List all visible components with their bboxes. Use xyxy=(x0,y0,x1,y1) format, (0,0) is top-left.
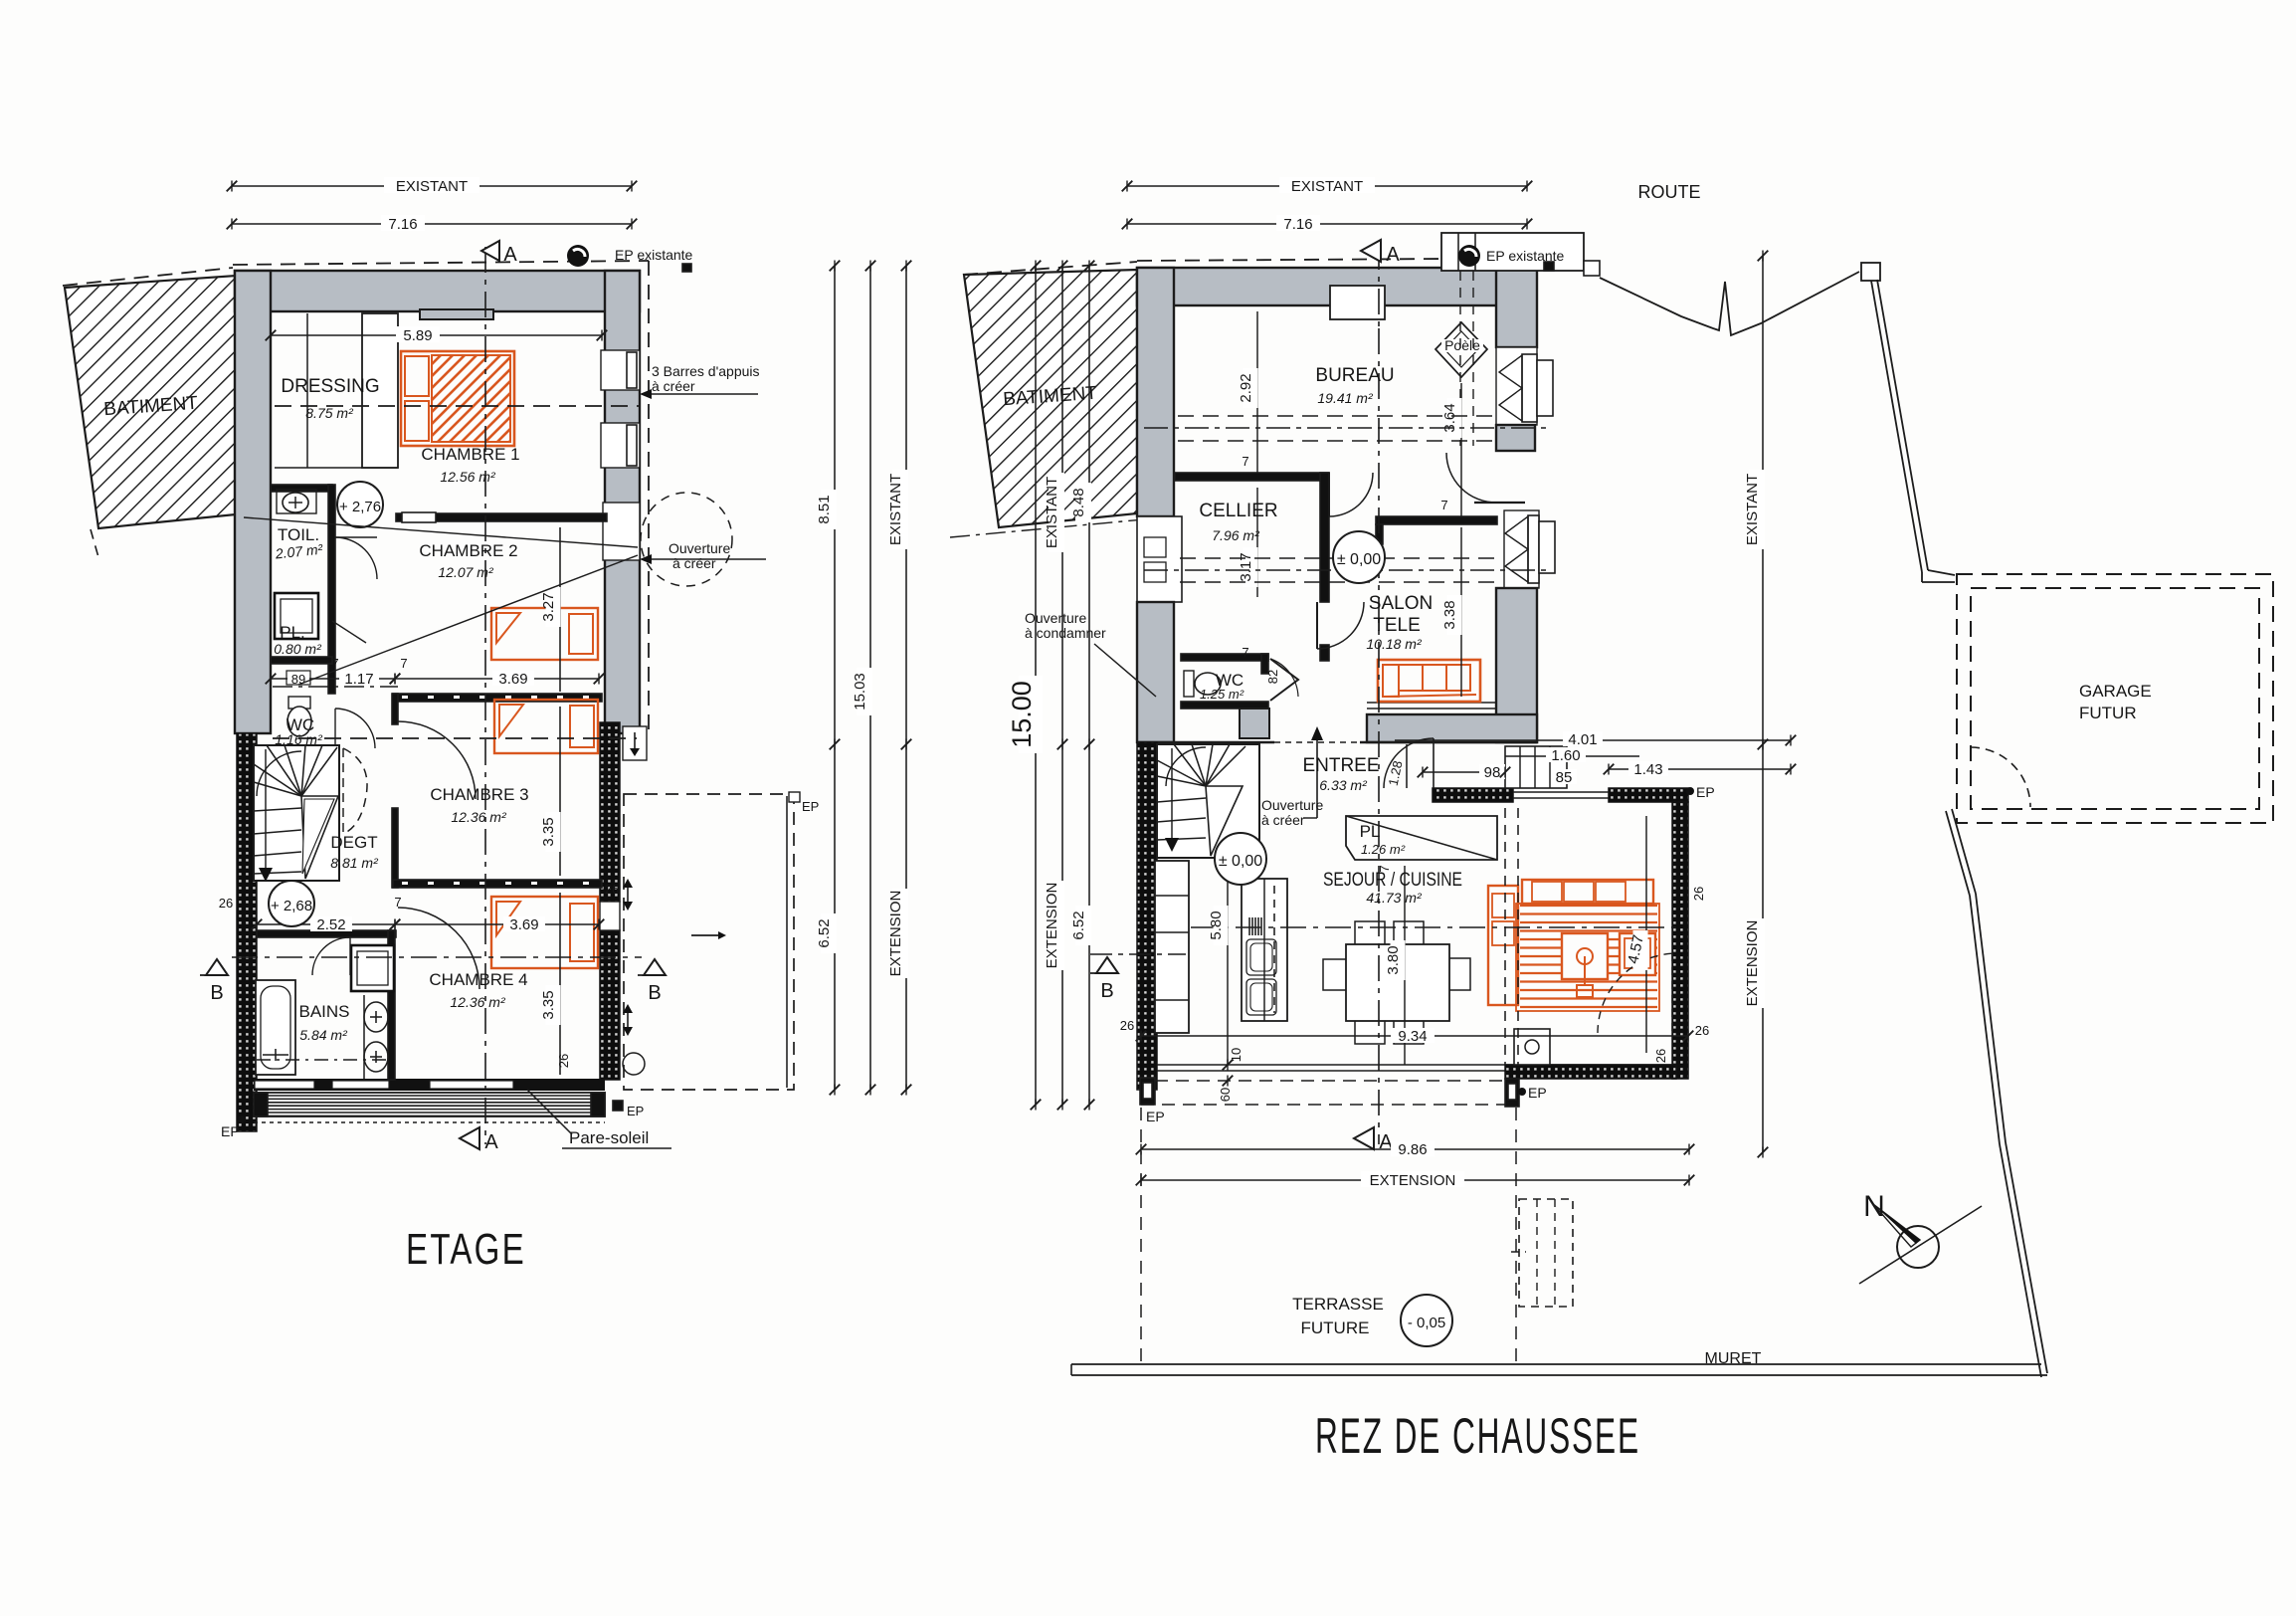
svg-text:2.52: 2.52 xyxy=(316,916,345,933)
svg-text:Ouverture: Ouverture xyxy=(669,540,730,556)
svg-text:12.07 m²: 12.07 m² xyxy=(438,564,494,580)
svg-text:CHAMBRE 2: CHAMBRE 2 xyxy=(419,541,517,560)
svg-text:7.96 m²: 7.96 m² xyxy=(1212,527,1260,543)
svg-text:9.86: 9.86 xyxy=(1398,1141,1427,1158)
svg-text:2.92: 2.92 xyxy=(1238,373,1254,402)
svg-text:± 0,00: ± 0,00 xyxy=(1219,853,1262,870)
svg-text:à créer: à créer xyxy=(672,555,716,571)
svg-text:PL: PL xyxy=(1360,822,1381,841)
svg-text:EP: EP xyxy=(627,1104,644,1118)
svg-text:EXISTANT: EXISTANT xyxy=(1044,477,1060,548)
svg-text:5.89: 5.89 xyxy=(403,327,432,344)
svg-text:15.00: 15.00 xyxy=(1007,681,1037,748)
svg-text:EP: EP xyxy=(1696,784,1715,800)
svg-text:5.84 m²: 5.84 m² xyxy=(299,1027,348,1043)
svg-text:EXTENSION: EXTENSION xyxy=(1044,883,1060,969)
svg-text:7: 7 xyxy=(394,895,401,910)
svg-text:DRESSING: DRESSING xyxy=(281,376,379,397)
svg-text:8.48: 8.48 xyxy=(1070,488,1087,516)
svg-text:A: A xyxy=(503,244,517,266)
svg-text:EP: EP xyxy=(221,1123,240,1139)
svg-text:6.52: 6.52 xyxy=(816,918,833,947)
svg-text:1.26 m²: 1.26 m² xyxy=(1361,842,1406,857)
svg-text:10.18 m²: 10.18 m² xyxy=(1366,636,1423,652)
svg-text:+ 2,76: + 2,76 xyxy=(339,499,381,515)
svg-text:FUTURE: FUTURE xyxy=(1301,1318,1370,1337)
svg-text:26: 26 xyxy=(1653,1049,1668,1063)
svg-text:26: 26 xyxy=(1695,1023,1709,1038)
svg-text:9.34: 9.34 xyxy=(1398,1028,1427,1045)
svg-text:12.56 m²: 12.56 m² xyxy=(440,469,496,485)
svg-text:3.35: 3.35 xyxy=(540,990,557,1019)
svg-text:± 0,00: ± 0,00 xyxy=(1337,551,1381,568)
svg-text:12.36 m²: 12.36 m² xyxy=(450,994,506,1010)
svg-text:8.81 m²: 8.81 m² xyxy=(330,855,379,871)
svg-text:A: A xyxy=(484,1131,498,1153)
svg-text:8.75 m²: 8.75 m² xyxy=(305,405,354,421)
svg-text:26: 26 xyxy=(556,1054,571,1068)
svg-text:1.43: 1.43 xyxy=(1633,761,1662,778)
svg-text:ROUTE: ROUTE xyxy=(1638,182,1701,202)
svg-text:26: 26 xyxy=(219,896,233,911)
svg-text:82: 82 xyxy=(1265,670,1280,684)
svg-text:à créer: à créer xyxy=(652,378,695,394)
svg-text:0.80 m²: 0.80 m² xyxy=(274,641,322,657)
svg-text:Ouverture: Ouverture xyxy=(1261,797,1323,813)
svg-text:EXTENSION: EXTENSION xyxy=(1370,1172,1456,1189)
svg-text:CHAMBRE 4: CHAMBRE 4 xyxy=(429,970,527,989)
svg-text:26: 26 xyxy=(1120,1018,1134,1033)
svg-text:BAINS: BAINS xyxy=(298,1002,349,1021)
svg-text:Poèle: Poèle xyxy=(1444,337,1480,353)
svg-text:à créer: à créer xyxy=(1261,812,1305,828)
svg-text:7: 7 xyxy=(1242,645,1248,660)
svg-text:DEGT: DEGT xyxy=(330,833,377,852)
svg-text:CELLIER: CELLIER xyxy=(1199,501,1277,521)
svg-text:3.69: 3.69 xyxy=(509,916,538,933)
svg-text:3.69: 3.69 xyxy=(498,671,527,688)
svg-text:EXTENSION: EXTENSION xyxy=(887,891,904,977)
svg-text:7: 7 xyxy=(400,656,407,671)
svg-text:1.60: 1.60 xyxy=(1551,747,1580,764)
svg-text:B: B xyxy=(648,982,661,1004)
svg-text:B: B xyxy=(210,982,223,1004)
svg-text:1.17: 1.17 xyxy=(344,671,373,688)
svg-text:7.16: 7.16 xyxy=(388,216,417,233)
svg-text:à condamner: à condamner xyxy=(1025,625,1106,641)
svg-text:41.73 m²: 41.73 m² xyxy=(1366,890,1423,906)
svg-text:1.16 m²: 1.16 m² xyxy=(275,731,323,747)
svg-text:B: B xyxy=(1100,980,1113,1002)
svg-text:Ouverture: Ouverture xyxy=(1025,610,1086,626)
svg-text:PL.: PL. xyxy=(280,623,305,642)
svg-text:3.38: 3.38 xyxy=(1441,600,1458,629)
svg-text:EXISTANT: EXISTANT xyxy=(887,474,904,545)
svg-text:15.03: 15.03 xyxy=(852,673,868,710)
svg-text:26: 26 xyxy=(1691,887,1706,901)
svg-text:CHAMBRE 3: CHAMBRE 3 xyxy=(430,785,528,804)
svg-text:6.33 m²: 6.33 m² xyxy=(1319,777,1368,793)
svg-text:26: 26 xyxy=(605,882,619,897)
svg-text:7.16: 7.16 xyxy=(1283,216,1312,233)
svg-text:EXISTANT: EXISTANT xyxy=(1744,474,1761,545)
svg-text:85: 85 xyxy=(1556,769,1573,786)
svg-text:4.01: 4.01 xyxy=(1568,731,1597,748)
svg-text:EP: EP xyxy=(1528,1085,1547,1101)
svg-text:10: 10 xyxy=(1229,1048,1244,1062)
svg-text:12.36 m²: 12.36 m² xyxy=(451,809,507,825)
svg-text:3.17: 3.17 xyxy=(1238,552,1254,581)
svg-text:SEJOUR / CUISINE: SEJOUR / CUISINE xyxy=(1323,870,1462,891)
svg-text:- 0,05: - 0,05 xyxy=(1408,1315,1445,1331)
svg-text:TELE: TELE xyxy=(1373,615,1421,636)
svg-text:3.35: 3.35 xyxy=(540,817,557,846)
svg-text:EP: EP xyxy=(802,799,819,814)
svg-text:BUREAU: BUREAU xyxy=(1315,365,1394,386)
svg-text:7: 7 xyxy=(1440,498,1447,512)
svg-text:60: 60 xyxy=(1218,1088,1233,1102)
svg-text:3 Barres d'appuis: 3 Barres d'appuis xyxy=(652,363,760,379)
svg-text:Pare-soleil: Pare-soleil xyxy=(569,1128,649,1147)
svg-text:ENTREE: ENTREE xyxy=(1302,755,1379,776)
svg-text:REZ DE CHAUSSEE: REZ DE CHAUSSEE xyxy=(1315,1408,1640,1464)
svg-text:CHAMBRE 1: CHAMBRE 1 xyxy=(421,445,519,464)
svg-text:A: A xyxy=(1386,244,1400,266)
svg-text:EP: EP xyxy=(1146,1109,1165,1124)
svg-text:6.52: 6.52 xyxy=(1070,911,1087,939)
svg-text:3.80: 3.80 xyxy=(1385,945,1402,974)
svg-text:5.80: 5.80 xyxy=(1208,911,1225,939)
svg-text:FUTUR: FUTUR xyxy=(2079,704,2137,722)
svg-text:98: 98 xyxy=(1484,764,1501,781)
svg-text:19.41 m²: 19.41 m² xyxy=(1317,390,1374,406)
svg-text:8.51: 8.51 xyxy=(816,495,833,523)
svg-text:EXISTANT: EXISTANT xyxy=(1291,178,1363,195)
svg-text:SALON: SALON xyxy=(1369,593,1433,614)
svg-text:EXTENSION: EXTENSION xyxy=(1744,920,1761,1007)
svg-text:+ 2,68: + 2,68 xyxy=(271,898,312,914)
svg-text:N: N xyxy=(1863,1190,1885,1223)
svg-text:7: 7 xyxy=(1242,454,1248,469)
svg-text:7: 7 xyxy=(331,656,338,671)
svg-text:3.27: 3.27 xyxy=(540,592,557,621)
svg-text:TERRASSE: TERRASSE xyxy=(1292,1295,1384,1314)
svg-text:ETAGE: ETAGE xyxy=(406,1225,526,1274)
svg-text:EP existante: EP existante xyxy=(615,247,693,263)
svg-text:EXISTANT: EXISTANT xyxy=(396,178,468,195)
svg-text:GARAGE: GARAGE xyxy=(2079,682,2152,701)
svg-text:1.25 m²: 1.25 m² xyxy=(1200,687,1244,702)
